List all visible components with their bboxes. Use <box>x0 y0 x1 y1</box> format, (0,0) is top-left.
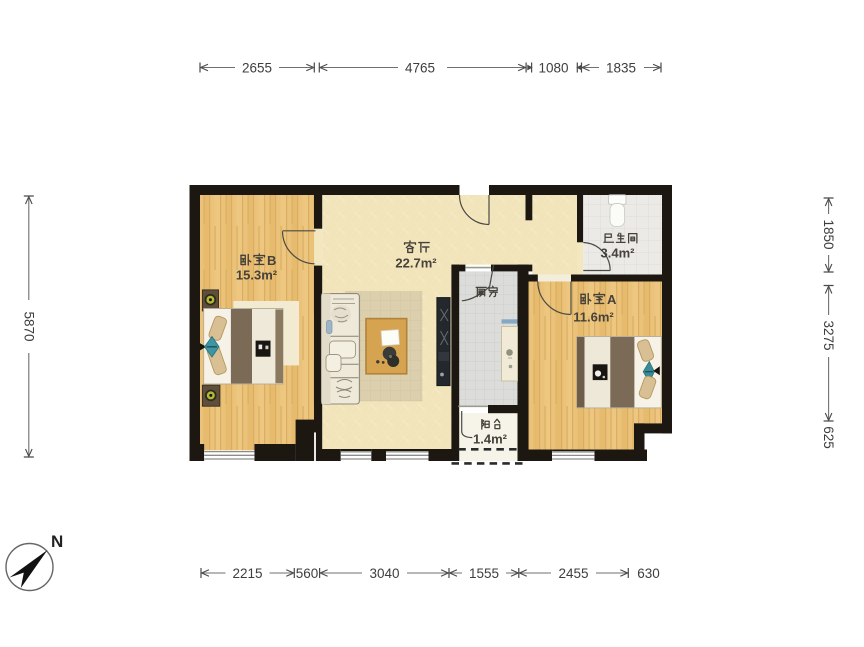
svg-text:2455: 2455 <box>558 566 588 581</box>
svg-text:2655: 2655 <box>242 61 272 76</box>
svg-text:2215: 2215 <box>232 566 262 581</box>
svg-text:3275: 3275 <box>821 320 836 350</box>
svg-text:3.4m²: 3.4m² <box>601 246 636 261</box>
svg-text:B: B <box>267 253 276 268</box>
svg-text:5870: 5870 <box>21 311 36 341</box>
svg-text:4765: 4765 <box>405 61 435 76</box>
svg-text:1850: 1850 <box>821 219 836 249</box>
svg-text:1835: 1835 <box>606 61 636 76</box>
svg-text:1555: 1555 <box>469 566 499 581</box>
svg-text:1080: 1080 <box>538 61 568 76</box>
svg-text:15.3m²: 15.3m² <box>236 267 278 282</box>
svg-text:630: 630 <box>637 566 660 581</box>
svg-text:1.4m²: 1.4m² <box>473 432 508 447</box>
svg-text:22.7m²: 22.7m² <box>395 256 437 271</box>
svg-text:N: N <box>51 532 63 551</box>
svg-text:3040: 3040 <box>369 566 399 581</box>
svg-text:11.6m²: 11.6m² <box>573 309 614 324</box>
svg-text:560: 560 <box>296 566 319 581</box>
svg-text:A: A <box>607 292 617 307</box>
svg-text:625: 625 <box>821 426 836 449</box>
